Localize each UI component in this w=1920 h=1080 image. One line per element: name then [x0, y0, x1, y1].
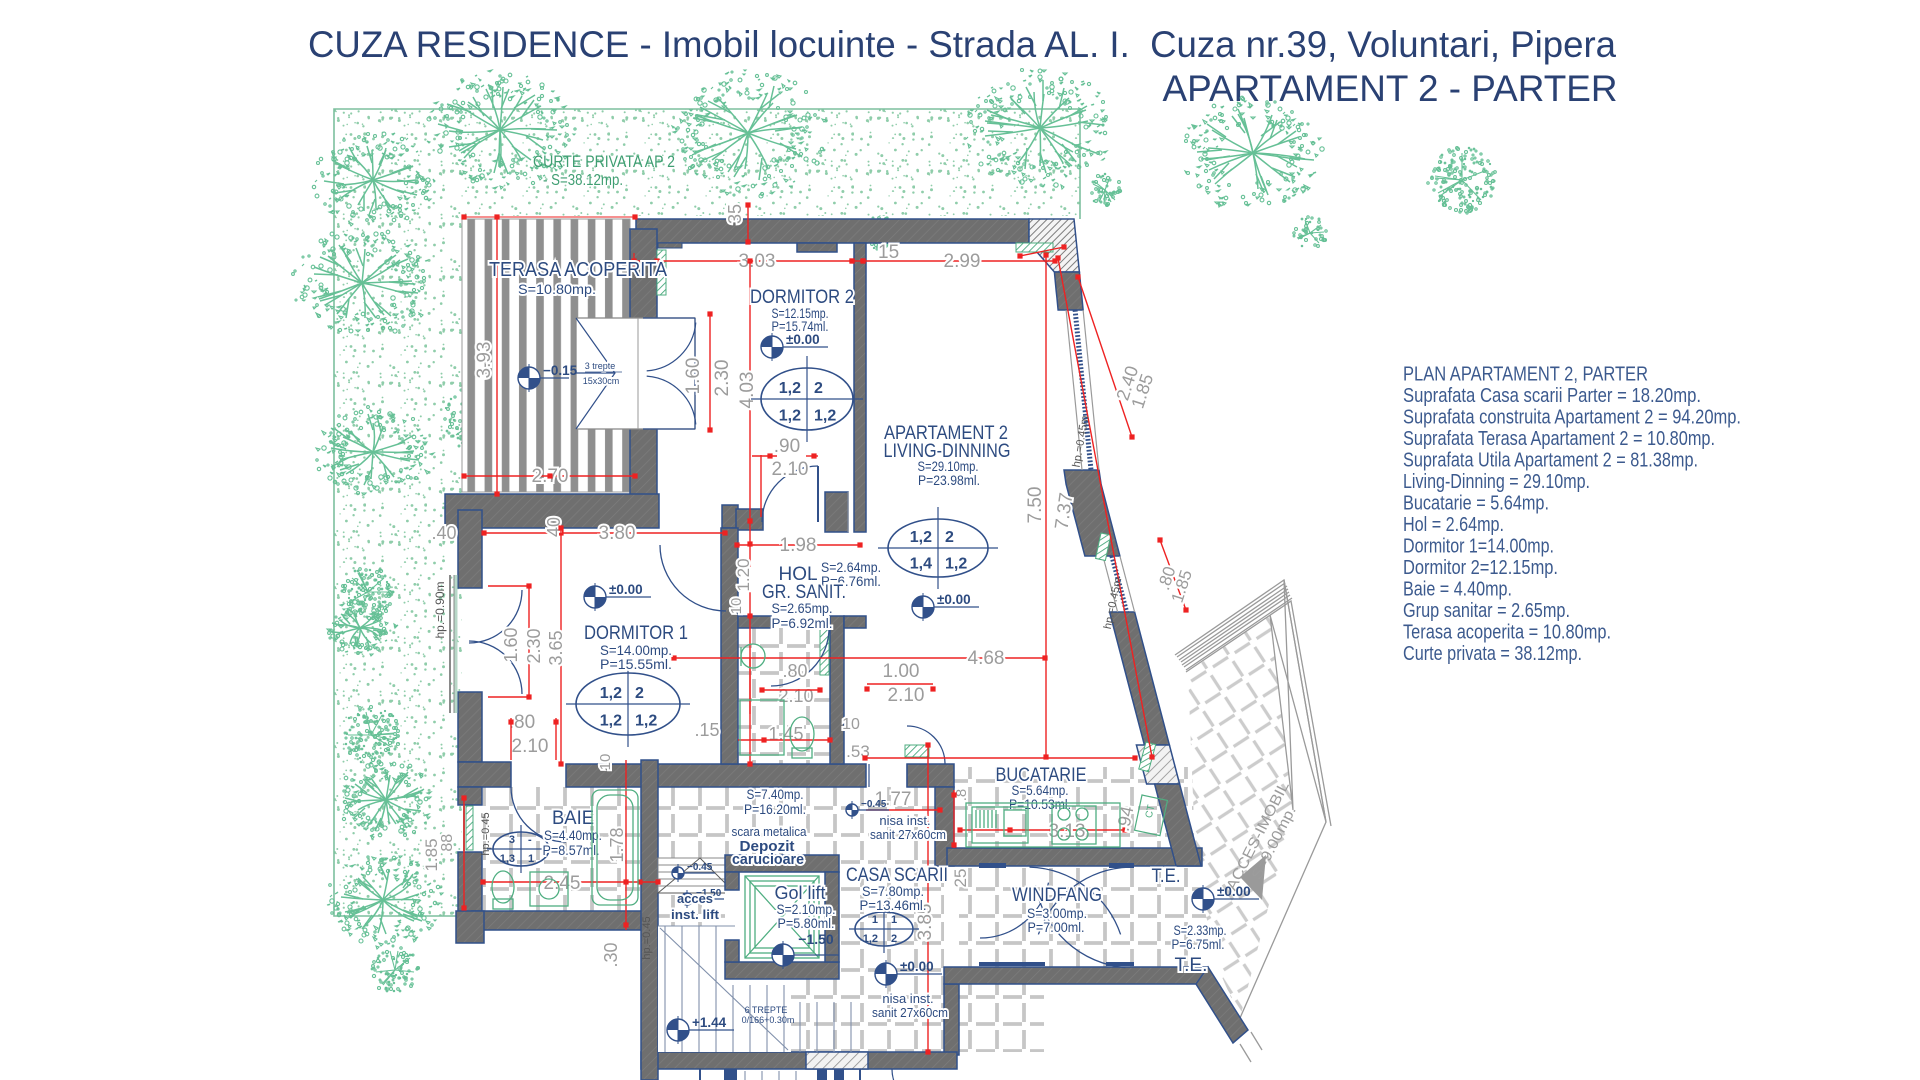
svg-text:P=8.57ml.: P=8.57ml. [543, 843, 600, 858]
svg-text:−0.45: −0.45 [861, 799, 887, 810]
svg-text:35: 35 [725, 204, 745, 224]
svg-text:4.03: 4.03 [737, 372, 758, 409]
svg-text:carucioare: carucioare [732, 852, 804, 868]
svg-text:.90: .90 [774, 436, 800, 457]
svg-text:S=7.80mp.: S=7.80mp. [862, 884, 924, 899]
svg-text:.88: .88 [439, 834, 456, 856]
svg-text:7.50: 7.50 [1025, 487, 1046, 524]
svg-text:.15: .15 [694, 720, 719, 740]
svg-text:1,4: 1,4 [910, 555, 932, 572]
svg-text:10: 10 [842, 716, 860, 733]
svg-text:+1.44: +1.44 [692, 1015, 727, 1030]
svg-text:−0.45: −0.45 [687, 862, 713, 873]
svg-text:T.E.: T.E. [1175, 955, 1208, 976]
svg-text:nisa inst.: nisa inst. [879, 813, 930, 828]
svg-text:sanit 27x60cm: sanit 27x60cm [872, 1005, 948, 1020]
svg-text:hp.=0.90m: hp.=0.90m [433, 581, 447, 638]
svg-text:15: 15 [878, 242, 899, 263]
svg-text:−0.15: −0.15 [543, 363, 578, 378]
svg-text:1,2: 1,2 [779, 380, 801, 397]
svg-text:2.30: 2.30 [524, 628, 544, 663]
svg-text:Dormitor 2=12.15mp.: Dormitor 2=12.15mp. [1403, 557, 1558, 579]
svg-text:10: 10 [597, 754, 614, 771]
svg-text:1,2: 1,2 [779, 408, 801, 425]
svg-text:1.78: 1.78 [607, 827, 627, 862]
svg-text:1,2: 1,2 [635, 713, 657, 730]
svg-text:2.10: 2.10 [512, 736, 549, 757]
svg-text:S=7.40mp.: S=7.40mp. [747, 787, 804, 802]
svg-text:DORMITOR 2: DORMITOR 2 [750, 287, 854, 308]
svg-text:1,2: 1,2 [910, 529, 932, 546]
svg-text:1,2: 1,2 [600, 685, 622, 702]
svg-text:10: 10 [728, 598, 745, 615]
svg-text:2: 2 [635, 685, 644, 702]
svg-text:−1.50: −1.50 [798, 931, 834, 947]
svg-text:1,3: 1,3 [500, 853, 515, 865]
svg-text:S=2.10mp.: S=2.10mp. [777, 902, 836, 917]
svg-text:sanit 27x60cm: sanit 27x60cm [870, 827, 946, 842]
svg-text:1.60: 1.60 [501, 627, 521, 662]
svg-text:GR. SANIT.: GR. SANIT. [762, 582, 846, 603]
svg-text:nisa inst.: nisa inst. [882, 991, 933, 1006]
svg-text:1.98: 1.98 [780, 535, 817, 556]
svg-text:2.45: 2.45 [544, 873, 581, 894]
svg-text:6 TREPTE: 6 TREPTE [745, 1005, 788, 1015]
svg-text:S=3.00mp.: S=3.00mp. [1027, 906, 1087, 921]
svg-text:S=4.40mp.: S=4.40mp. [544, 828, 602, 843]
svg-text:3.80: 3.80 [599, 523, 636, 544]
svg-text:P=13.46ml.: P=13.46ml. [860, 898, 927, 913]
svg-text:P=15.55ml.: P=15.55ml. [600, 657, 672, 672]
svg-text:2: 2 [814, 380, 823, 397]
svg-text:T.E.: T.E. [1152, 866, 1181, 887]
svg-text:TERASA ACOPERITA: TERASA ACOPERITA [489, 259, 668, 281]
svg-text:Suprafata construita Apartamen: Suprafata construita Apartament 2 = 94.2… [1403, 407, 1741, 429]
svg-text:S=14.00mp.: S=14.00mp. [600, 643, 672, 658]
svg-text:1,2: 1,2 [814, 408, 836, 425]
svg-text:scara metalica: scara metalica [732, 824, 808, 839]
svg-text:2: 2 [945, 529, 954, 546]
svg-text:4.68: 4.68 [968, 648, 1005, 669]
svg-text:Curte privata = 38.12mp.: Curte privata = 38.12mp. [1403, 643, 1582, 665]
svg-text:1: 1 [872, 914, 878, 926]
svg-text:S=5.64mp.: S=5.64mp. [1012, 783, 1069, 798]
svg-text:Living-Dinning = 29.10mp.: Living-Dinning = 29.10mp. [1403, 471, 1590, 493]
svg-text:2.30: 2.30 [712, 360, 733, 397]
svg-text:.40: .40 [431, 523, 456, 543]
svg-text:2.10: 2.10 [772, 459, 809, 480]
svg-text:Baie = 4.40mp.: Baie = 4.40mp. [1403, 579, 1512, 601]
svg-text:P=15.74ml.: P=15.74ml. [772, 319, 829, 334]
svg-text:0/166+0.30m: 0/166+0.30m [742, 1015, 795, 1025]
svg-text:±0.00: ±0.00 [900, 959, 934, 974]
svg-text:Suprafata Casa scarii Parter =: Suprafata Casa scarii Parter = 18.20mp. [1403, 385, 1701, 407]
svg-text:PLAN APARTAMENT 2, PARTER: PLAN APARTAMENT 2, PARTER [1403, 364, 1648, 386]
svg-text:Grup sanitar = 2.65mp.: Grup sanitar = 2.65mp. [1403, 600, 1570, 622]
svg-text:acces: acces [677, 891, 713, 906]
svg-text:S=2.65mp.: S=2.65mp. [772, 601, 833, 616]
svg-text:1.00: 1.00 [883, 661, 920, 682]
svg-text:S=29.10mp.: S=29.10mp. [918, 459, 979, 474]
svg-text:25: 25 [951, 869, 970, 888]
svg-text:WINDFANG: WINDFANG [1012, 885, 1102, 906]
svg-text:3 trepte: 3 trepte [585, 361, 616, 371]
svg-text:3.65: 3.65 [546, 630, 566, 665]
svg-text:P=23.98ml.: P=23.98ml. [918, 473, 980, 488]
svg-text:Suprafata Utila Apartament 2 =: Suprafata Utila Apartament 2 = 81.38mp. [1403, 450, 1698, 472]
svg-text:1.45: 1.45 [768, 724, 803, 744]
svg-text:P=16.20ml.: P=16.20ml. [744, 802, 806, 817]
svg-text:CUZA RESIDENCE - Imobil locuin: CUZA RESIDENCE - Imobil locuinte - Strad… [308, 24, 1616, 65]
svg-text:APARTAMENT 2 - PARTER: APARTAMENT 2 - PARTER [1163, 68, 1618, 109]
svg-text:P=7.00ml.: P=7.00ml. [1028, 920, 1085, 935]
svg-text:CASA SCARII: CASA SCARII [846, 865, 948, 886]
svg-text:±0.00: ±0.00 [786, 332, 820, 347]
svg-text:Hol = 2.64mp.: Hol = 2.64mp. [1403, 514, 1504, 536]
svg-text:P=6.92ml.: P=6.92ml. [772, 616, 833, 631]
svg-text:15x30cm: 15x30cm [583, 376, 620, 386]
svg-text:3.03: 3.03 [739, 251, 776, 272]
svg-text:1: 1 [528, 853, 534, 865]
svg-text:1.60: 1.60 [683, 358, 704, 395]
svg-text:Dormitor 1=14.00mp.: Dormitor 1=14.00mp. [1403, 536, 1554, 558]
svg-text:- S=38.12mp.: - S=38.12mp. [543, 172, 623, 189]
svg-text:±0.00: ±0.00 [1217, 884, 1251, 899]
svg-text:3.93: 3.93 [474, 342, 495, 379]
svg-text:S=2.64mp.: S=2.64mp. [821, 560, 881, 575]
svg-text:2: 2 [891, 933, 897, 945]
svg-text:1: 1 [891, 914, 897, 926]
svg-text:1,2: 1,2 [945, 555, 967, 572]
svg-text:-: - [528, 834, 532, 846]
svg-text:3: 3 [509, 834, 515, 846]
svg-text:hp.=0.45: hp.=0.45 [641, 916, 653, 959]
svg-text:P=6.75ml.: P=6.75ml. [1172, 937, 1225, 952]
svg-text:P=5.80ml.: P=5.80ml. [778, 916, 835, 931]
svg-text:.30: .30 [601, 942, 621, 967]
svg-text:1,2: 1,2 [600, 713, 622, 730]
svg-text:2.10: 2.10 [888, 685, 925, 706]
svg-text:BAIE: BAIE [552, 808, 594, 829]
svg-text:Gol lift: Gol lift [774, 883, 825, 903]
svg-text:Terasa acoperita = 10.80mp.: Terasa acoperita = 10.80mp. [1403, 622, 1611, 644]
svg-text:DORMITOR 1: DORMITOR 1 [584, 623, 688, 644]
svg-text:CURTE PRIVATA AP 2: CURTE PRIVATA AP 2 [533, 152, 675, 171]
svg-text:2.99: 2.99 [944, 251, 981, 272]
svg-text:1,2: 1,2 [863, 933, 878, 945]
svg-text:S=10.80mp.: S=10.80mp. [518, 281, 596, 297]
svg-text:S=2.33mp.: S=2.33mp. [1174, 923, 1227, 938]
svg-text:±0.00: ±0.00 [937, 592, 971, 607]
svg-text:inst. lift: inst. lift [671, 907, 720, 922]
svg-text:1.20: 1.20 [734, 558, 753, 591]
svg-text:Bucatarie = 5.64mp.: Bucatarie = 5.64mp. [1403, 493, 1549, 515]
svg-text:Suprafata Terasa Apartament 2: Suprafata Terasa Apartament 2 = 10.80mp. [1403, 428, 1715, 450]
svg-text:±0.00: ±0.00 [609, 582, 643, 597]
svg-text:.80: .80 [782, 661, 807, 681]
